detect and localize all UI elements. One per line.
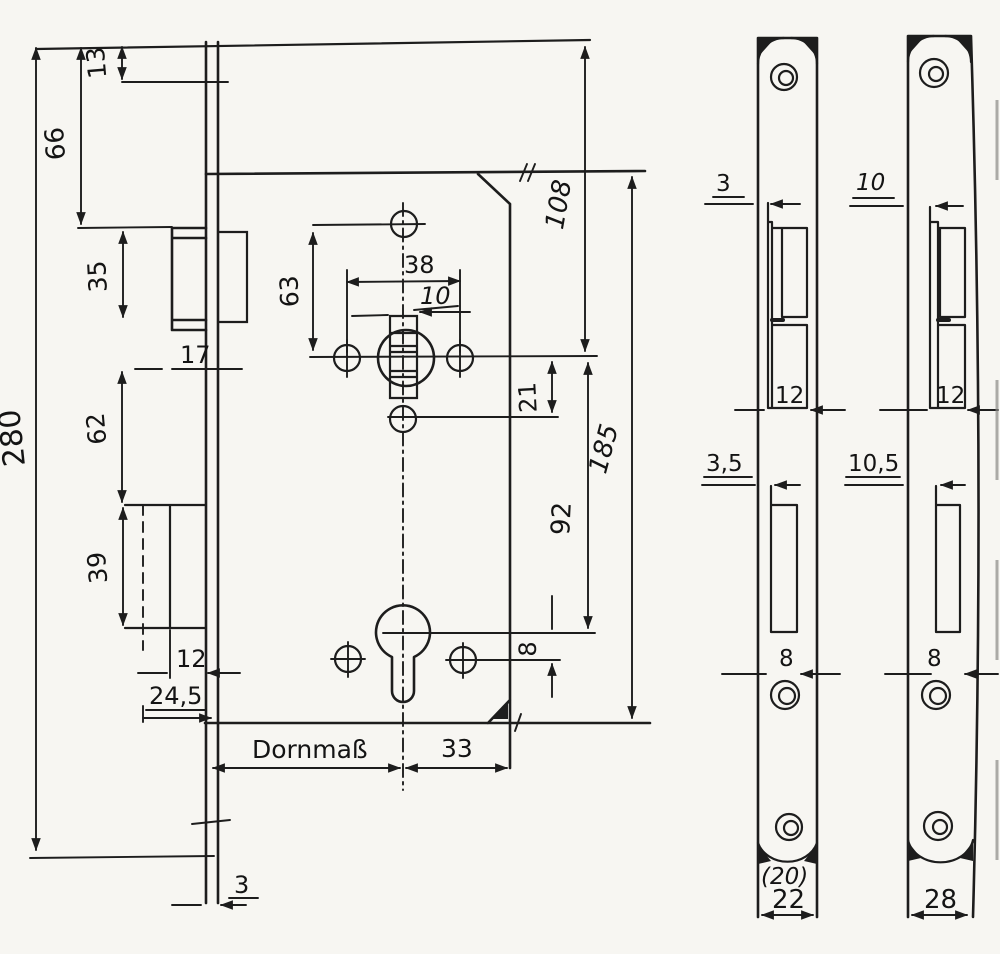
dim-bolt-width-round: 8: [927, 646, 942, 672]
bolt-side-profile-round: [936, 486, 960, 632]
screw-hole-mid-inner: [779, 688, 795, 704]
top-hole-centerline: [313, 224, 425, 225]
dim-case-height: 185: [583, 421, 625, 477]
dim-latch-step-flat: 3: [716, 171, 731, 197]
dim-top-to-latch: 66: [40, 126, 72, 161]
dim-backset-label: Dornmaß: [252, 735, 368, 764]
round-faceplate-view: 10 12 10,5 8 28: [845, 36, 998, 917]
latch-side-profile-flat: [768, 203, 807, 408]
dim-latch-to-bolt: 62: [81, 412, 113, 446]
follower-centerline: [310, 356, 597, 357]
bottom-right-spandrel: [804, 845, 817, 864]
dim-top-to-follower: 108: [540, 178, 578, 232]
dim-top-offset: 13: [81, 46, 113, 80]
dim-bolt-step-round: 10,5: [848, 451, 899, 477]
screw-hole-bottom-round-inner: [933, 820, 947, 834]
latch-head: [172, 228, 206, 330]
screw-hole-top-round-inner: [929, 67, 943, 81]
flat-faceplate-view: 3 12 3,5 8 (20) 22: [702, 38, 845, 917]
plate-top-line: [36, 40, 590, 49]
plate-bottom-ref-line: [30, 856, 214, 858]
dim-overall-height: 280: [0, 408, 33, 469]
screw-hole-top-inner: [779, 71, 793, 85]
dim-width-flat: 22: [772, 885, 805, 915]
dim-latch-width-round: 12: [936, 383, 965, 409]
bottom-left-spandrel: [758, 845, 771, 864]
dim-spindle-square: 10: [420, 282, 451, 310]
dim-width-round: 28: [924, 885, 957, 915]
latch-body: [218, 232, 247, 322]
dim-plate-thickness: 3: [234, 871, 249, 899]
dim-follower-to-cylinder: 92: [546, 501, 578, 536]
screw-hole-bottom-inner: [784, 821, 798, 835]
deadbolt: [125, 505, 205, 628]
dim-latch-height: 35: [82, 260, 113, 293]
bottom-right-spandrel-round: [960, 842, 973, 861]
faceplate-break-tick: [192, 820, 230, 824]
faceplate-strip: [206, 42, 218, 903]
dim-cylinder-hole-offset: 8: [514, 641, 542, 656]
bottom-left-spandrel-round: [908, 842, 921, 861]
dim-follower-to-hole: 21: [513, 381, 543, 413]
dim-bolt-width-flat: 8: [779, 646, 794, 672]
dim-latch-step-round: 10: [856, 170, 885, 196]
lock-technical-drawing: 280 66 13 35 17 62 39 12 24,5 3 63 38 10…: [0, 0, 1000, 954]
dim-bolt-height: 39: [82, 551, 114, 585]
latch-side-profile-round: [930, 207, 965, 408]
dim-hole-above-follower: 63: [274, 275, 304, 308]
scanned-drawing-page: 280 66 13 35 17 62 39 12 24,5 3 63 38 10…: [0, 0, 1000, 954]
dim-latch-note: 17: [180, 341, 211, 369]
dim-bolt-step-flat: 3,5: [706, 451, 743, 477]
flat-plate-outline: [758, 38, 817, 917]
dim-axis-to-edge: 33: [441, 734, 473, 763]
dim-bolt-width: 12: [176, 645, 207, 673]
screw-hole-mid-round-inner: [930, 688, 946, 704]
round-plate-bottom-radius: [908, 840, 973, 862]
bolt-side-profile-flat: [771, 486, 797, 632]
round-plate-outline: [908, 36, 979, 917]
dim-bolt-depth: 24,5: [149, 682, 202, 710]
dim-latch-width-flat: 12: [775, 383, 804, 409]
main-view-lock-body: 280 66 13 35 17 62 39 12 24,5 3 63 38 10…: [0, 40, 650, 905]
dim-hole-spacing: 38: [404, 251, 435, 279]
